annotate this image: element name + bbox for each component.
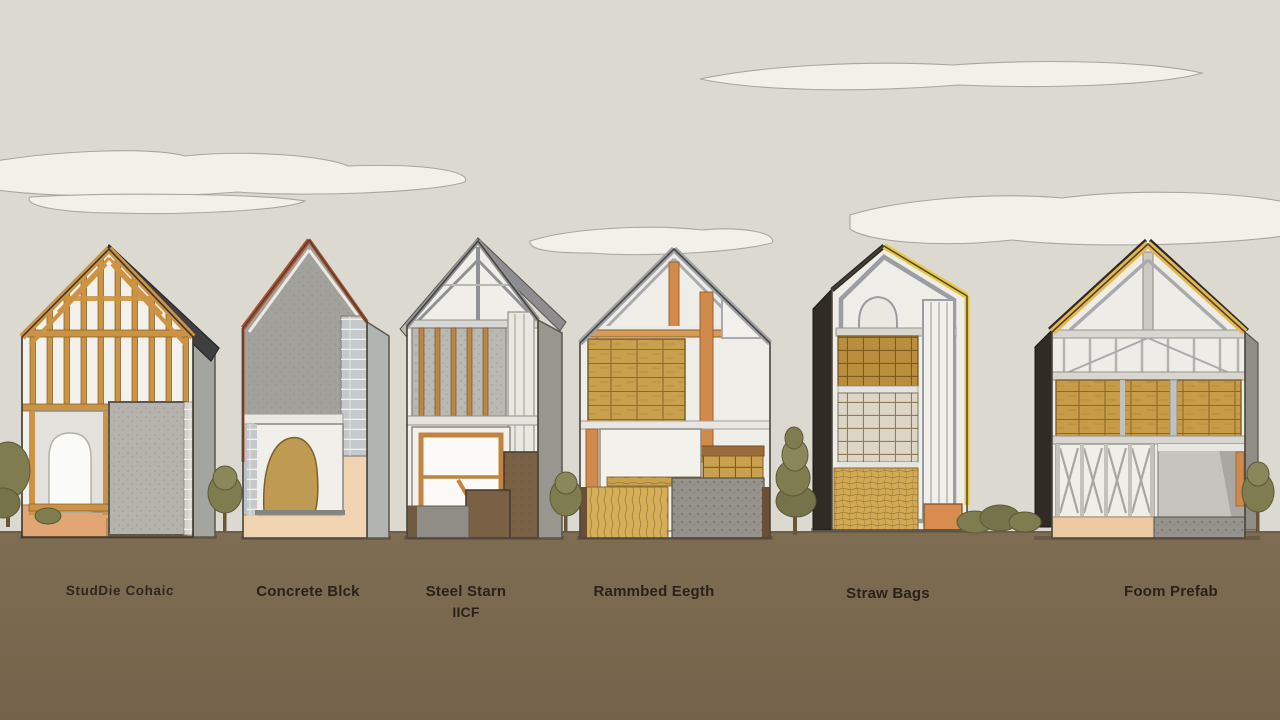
base-tan: [1052, 517, 1154, 538]
sheathing-texture: [412, 328, 506, 418]
straw-fill-texture2: [834, 468, 918, 530]
floor-beam: [580, 421, 770, 429]
brick-corner: [407, 506, 417, 538]
floor-sill: [255, 510, 345, 515]
wood-shelf: [700, 446, 764, 456]
arched-doorway: [49, 433, 91, 512]
brick-column-texture: [184, 402, 193, 535]
straw-bag-grid-upper-texture: [838, 336, 918, 386]
arched-window: [859, 297, 897, 331]
gray-room-ceiling: [1158, 444, 1245, 451]
block-column-texture: [341, 316, 367, 456]
straw-bag-grid-lower-texture: [838, 393, 918, 462]
rammed-earth-texture: [586, 487, 668, 538]
scene-svg: [0, 0, 1280, 720]
straw-band-texture: [1056, 380, 1241, 438]
label-straw-bags: Straw Bags: [818, 586, 958, 603]
floor-beam: [838, 386, 918, 393]
earth-block-step: [466, 490, 510, 538]
label-rammed-earth: Rammbed Eegth: [574, 584, 734, 601]
band-divider-post: [1120, 380, 1125, 438]
straw-right-texture: [703, 456, 763, 478]
house-side-wall: [193, 337, 215, 537]
illustration-canvas: StudDie Cohaic Concrete Blck Steel Starn…: [0, 0, 1280, 720]
icf-column: [508, 312, 534, 464]
band-divider-post: [1170, 380, 1177, 438]
house-side-dark: [813, 289, 832, 530]
label-stud-frame: StudDie Cohaic: [40, 584, 201, 599]
house-straw-bags-illustration: [813, 246, 967, 530]
concrete-texture: [109, 402, 186, 535]
label-steel-stam-sub: IICF: [396, 605, 536, 620]
ground: [0, 531, 1280, 720]
pier-block: [762, 487, 770, 538]
label-foam-prefab: Foom Prefab: [1091, 584, 1251, 601]
block-wall-left-texture: [247, 424, 257, 516]
ceiling-beam: [243, 414, 343, 424]
king-post-wood: [669, 262, 679, 334]
label-concrete-block: Concrete Blck: [238, 584, 378, 601]
room-post: [29, 411, 35, 515]
beam-mid: [1052, 372, 1245, 380]
sill-beam: [838, 462, 918, 468]
orange-footing: [924, 504, 962, 530]
straw-bale-texture: [588, 339, 685, 423]
orange-post: [700, 292, 713, 462]
house-side-wall: [367, 322, 389, 538]
base-gravel-texture: [1154, 517, 1245, 538]
label-steel-stam: Steel Starn: [396, 584, 536, 601]
top-plate-beam: [22, 330, 193, 337]
beam-low: [1052, 436, 1245, 444]
gravel-texture: [672, 478, 764, 538]
beam-top: [1052, 330, 1245, 338]
bush: [35, 508, 61, 524]
floor-beam: [407, 416, 538, 425]
house-side-dark: [1035, 330, 1052, 527]
